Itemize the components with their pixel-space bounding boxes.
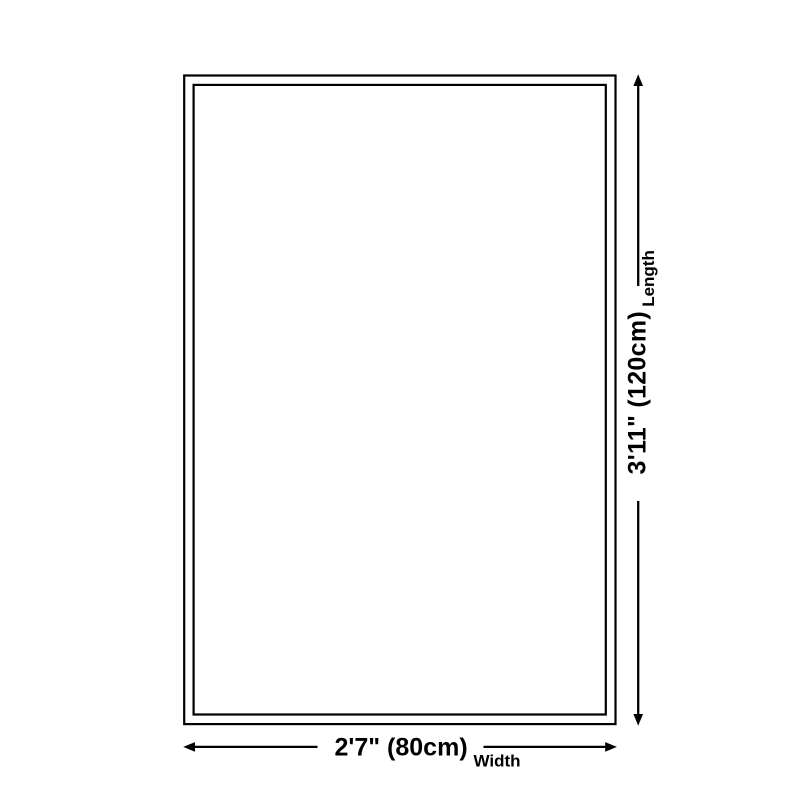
svg-text:Width: Width [474, 752, 521, 771]
svg-text:3'11" (120cm): 3'11" (120cm) [623, 311, 651, 474]
svg-text:Length: Length [639, 250, 658, 307]
svg-text:2'7" (80cm): 2'7" (80cm) [335, 734, 468, 762]
